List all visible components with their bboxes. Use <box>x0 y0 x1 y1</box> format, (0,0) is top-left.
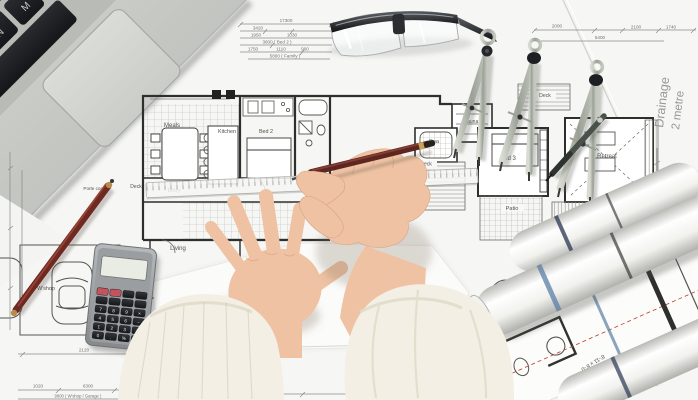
dimension-label: 1110 <box>276 47 286 52</box>
compass-leg <box>529 60 534 172</box>
dimension-label: 2100 <box>631 25 642 30</box>
dimension-label: 1020 <box>33 384 44 389</box>
dimension-label: 3420 <box>253 26 264 31</box>
calculator-key <box>135 292 147 300</box>
room-label: Kitchen <box>218 129 236 135</box>
bed2-furniture <box>247 138 291 178</box>
compass-hinge <box>589 74 603 86</box>
plan-door-block <box>226 90 235 99</box>
calculator-key-red <box>97 287 109 295</box>
glasses-bridge <box>392 14 405 35</box>
pencil-gold-band <box>419 145 424 146</box>
calculator-key-label: % <box>121 336 126 341</box>
architect-workspace-photo: 1234567890QWERTYUIOPASDFGHJKLZXCVBNM <box>0 0 698 400</box>
plan-door-block <box>212 90 221 99</box>
compass-hinge <box>527 52 541 64</box>
room-label: Meals <box>164 123 180 129</box>
calculator-key <box>122 299 134 307</box>
compass-adjuster-wheel <box>517 114 522 119</box>
left-index-finger <box>292 209 300 256</box>
dimension-label: 5400 <box>595 35 606 40</box>
room-label: Patio <box>506 206 519 212</box>
dimension-label: 2000 <box>552 24 563 29</box>
dimension-label: 3600 ( Bed 2 ) <box>262 40 292 45</box>
dimension-label: 5800 ( Family ) <box>270 54 301 59</box>
dimension-label: 1750 <box>248 47 259 52</box>
dimension-label: 1950 <box>251 33 262 38</box>
pencil-end-cap <box>427 143 432 144</box>
dimension-label: 1030 <box>287 33 298 38</box>
spare-pencil-ferrule <box>11 310 17 316</box>
compass-adjuster-wheel <box>470 106 475 111</box>
dimension-label: 17300 <box>280 18 293 23</box>
dimension-label: 2120 <box>79 348 90 353</box>
room-label: Living <box>170 246 186 252</box>
calculator-key <box>109 298 121 306</box>
room-label: Bed 2 <box>259 129 273 135</box>
left-middle-finger <box>266 196 274 252</box>
dimension-label: 6300 <box>83 384 94 389</box>
mech-pencil-band <box>597 117 603 123</box>
calculator-key <box>122 290 134 298</box>
dimension-label: 900 <box>301 47 309 52</box>
compass-hinge-screw <box>485 49 489 53</box>
kitchen-counters <box>243 98 293 116</box>
pencil-graphite <box>292 178 296 180</box>
photo-canvas: 1234567890QWERTYUIOPASDFGHJKLZXCVBNM <box>0 0 698 400</box>
calculator-key <box>96 296 108 304</box>
patio-chip: Patio <box>501 204 524 212</box>
room-label: Deck <box>130 184 142 190</box>
dining-table <box>151 128 209 180</box>
spare-pencil-cap <box>110 179 114 183</box>
room-label: Retreat <box>597 154 617 160</box>
calculator-key-red <box>110 289 122 297</box>
room-label: Deck <box>539 93 551 99</box>
calculator-screen <box>100 256 148 281</box>
dimension-label: 1740 <box>666 25 677 30</box>
calculator-key <box>135 300 147 308</box>
dimension-label: 9900 ( W'shop / Garage ) <box>55 394 102 399</box>
